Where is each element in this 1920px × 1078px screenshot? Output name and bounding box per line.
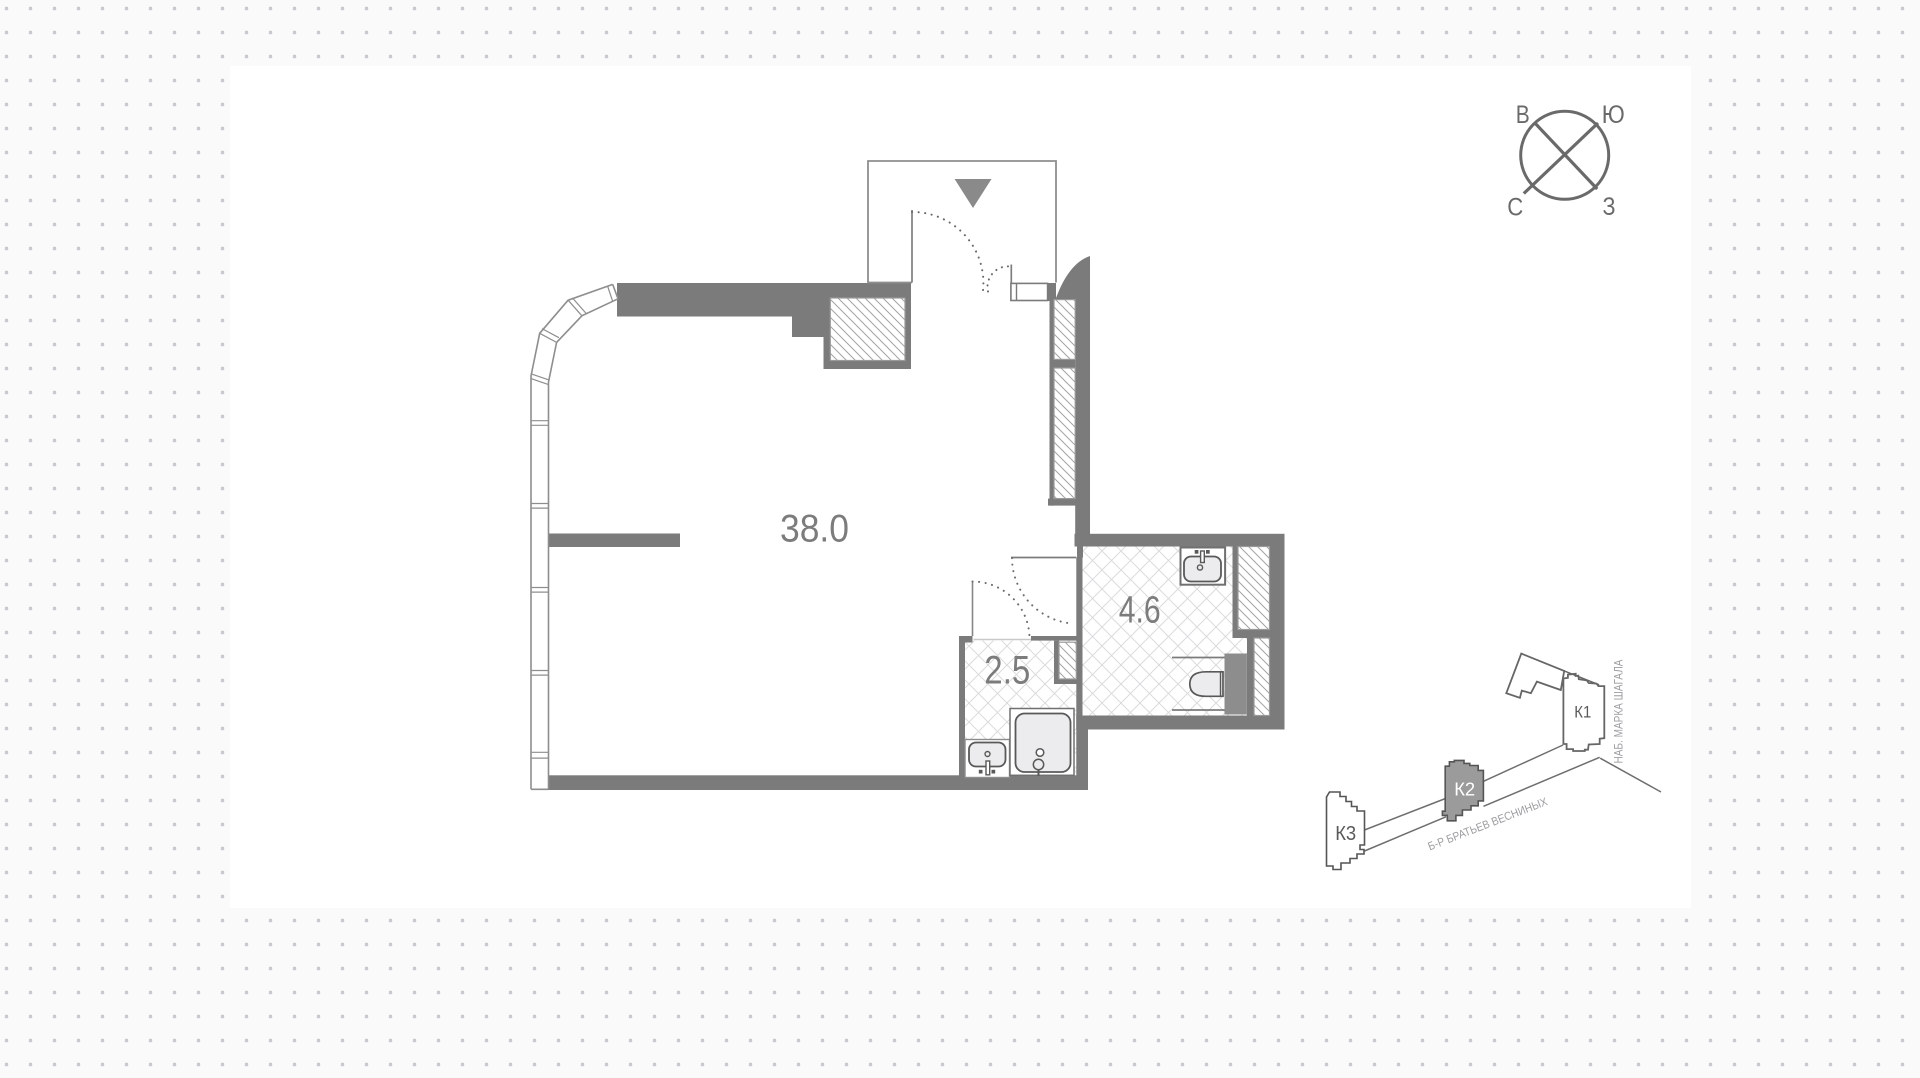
svg-text:4.6: 4.6 bbox=[1119, 589, 1161, 631]
svg-text:НАБ. МАРКА ШАГАЛА: НАБ. МАРКА ШАГАЛА bbox=[1614, 659, 1626, 763]
svg-text:38.0: 38.0 bbox=[780, 508, 849, 551]
svg-text:Ю: Ю bbox=[1602, 101, 1625, 129]
svg-text:К1: К1 bbox=[1574, 704, 1591, 722]
svg-text:К3: К3 bbox=[1335, 823, 1356, 845]
svg-text:С: С bbox=[1507, 194, 1523, 222]
svg-text:З: З bbox=[1603, 193, 1616, 221]
svg-text:2.5: 2.5 bbox=[984, 649, 1030, 693]
svg-text:К2: К2 bbox=[1454, 779, 1475, 800]
svg-text:В: В bbox=[1516, 101, 1530, 129]
